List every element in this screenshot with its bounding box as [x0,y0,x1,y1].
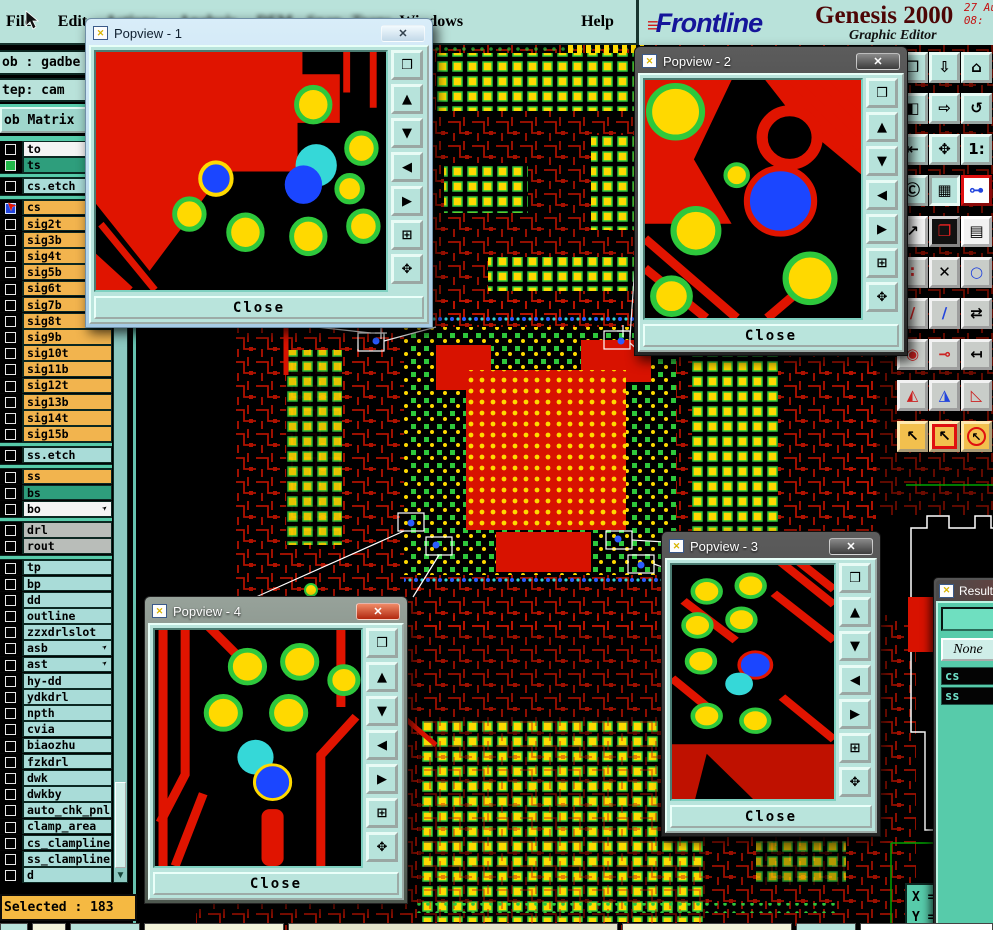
pan-window-right-button[interactable]: ⇨ [929,93,960,124]
zoom-fit-icon[interactable]: ✥ [839,767,871,797]
layer-row-dwkby[interactable]: dwkby [0,786,112,802]
layer-visibility-checkbox[interactable] [0,786,22,802]
layer-row-ss_clampline[interactable]: ss_clampline [0,851,112,867]
product-subtitle: Graphic Editor [849,28,937,44]
popview-4-close-button[interactable]: Close [153,872,399,895]
window-icon: ✕ [939,584,954,598]
layer-visibility-checkbox[interactable] [0,592,22,608]
grid-toggle-button[interactable]: ▦ [929,175,960,206]
layer-name[interactable]: sig11b [22,361,112,377]
layer-row-ast[interactable]: ast➤ [0,657,112,673]
layer-visibility-checkbox[interactable] [0,410,22,426]
layer-name[interactable]: bo➤ [22,501,112,517]
layer-visibility-checkbox[interactable] [0,624,22,640]
result-title: Result [959,584,993,598]
layer-row-sig12t[interactable]: sig12t [0,378,112,394]
zoom-in-icon[interactable]: ⊞ [366,798,398,828]
status-cell [70,923,140,930]
pan-down-icon[interactable]: ▼ [391,118,423,148]
swap-direction-button[interactable]: ⇄ [961,298,992,329]
layer-name[interactable]: dwkby [22,786,112,802]
layer-visibility-checkbox[interactable] [0,802,22,818]
status-cell [622,923,792,930]
layer-row-asb[interactable]: asb➤ [0,640,112,656]
measure-point-icon: ○ [970,265,983,280]
pan-center-button[interactable]: ✥ [929,134,960,165]
ruler-button[interactable]: ▤ [961,216,992,247]
slope-line-blue-button[interactable]: ∕ [929,298,960,329]
layer-name[interactable]: bs [22,485,112,501]
layer-name[interactable]: outline [22,608,112,624]
rotate-view-button[interactable]: ↺ [961,93,992,124]
segment-mid-button[interactable]: ⊸ [929,339,960,370]
layer-visibility-checkbox[interactable] [0,522,22,538]
scrollbar-thumb[interactable] [115,782,126,868]
layer-name[interactable]: ss_clampline [22,851,112,867]
layer-name[interactable]: bp [22,576,112,592]
layer-row-cvia[interactable]: cvia [0,721,112,737]
layer-context-arrow: ➤ [100,643,111,654]
popview-3-frame: ❒▲▼◀▶⊞✥ Close [665,558,877,833]
layer-visibility-checkbox[interactable] [0,297,22,313]
layer-row-biaozhu[interactable]: biaozhu [0,738,112,754]
layer-row-sig13b[interactable]: sig13b [0,394,112,410]
layer-row-sig14t[interactable]: sig14t [0,410,112,426]
result-field[interactable] [941,607,993,631]
layer-row-sig15b[interactable]: sig15b [0,426,112,442]
layer-visibility-checkbox[interactable] [0,608,22,624]
window-icon: ✕ [93,26,108,40]
popview-1-toolbar: ❒▲▼◀▶⊞✥ [388,50,424,292]
net-compare-button[interactable]: ⊶ [961,175,992,206]
pan-right-icon[interactable]: ▶ [391,186,423,216]
layer-visibility-checkbox[interactable] [0,485,22,501]
layer-visibility-checkbox[interactable] [0,394,22,410]
delete-mode-button[interactable]: ✕ [929,257,960,288]
layer-name[interactable]: dd [22,592,112,608]
pan-up-icon[interactable]: ▲ [866,112,898,142]
layer-name[interactable]: dwk [22,770,112,786]
layer-visibility-checkbox[interactable] [0,754,22,770]
layer-visibility-checkbox[interactable] [0,673,22,689]
angle-red-button[interactable]: ◭ [897,380,928,411]
popview-4-window[interactable]: ✕ Popview - 4 ✕ [144,596,408,904]
layer-visibility-checkbox[interactable] [0,560,22,576]
popview-3-close-button[interactable]: Close [670,805,872,828]
cursor-select-icon: ↖ [906,429,919,444]
result-titlebar[interactable]: ✕ Result [936,580,993,601]
popview-3-titlebar[interactable]: ✕ Popview - 3 ✕ [665,534,877,558]
layer-name[interactable]: fzkdrl [22,754,112,770]
layer-visibility-checkbox[interactable] [0,501,22,517]
zoom-1-1-icon: 1: [968,142,984,157]
layer-name[interactable]: rout [22,538,112,554]
layer-visibility-checkbox[interactable] [0,640,22,656]
layer-visibility-checkbox[interactable] [0,770,22,786]
layer-name[interactable]: sig9b [22,329,112,345]
result-none-button[interactable]: None [941,638,993,661]
menu-item-edit[interactable]: Edit [58,13,87,31]
popview-3-canvas[interactable] [670,563,836,801]
layer-name[interactable]: clamp_area [22,819,112,835]
layer-row-auto_chk_pnl[interactable]: auto_chk_pnl [0,802,112,818]
layer-visibility-checkbox[interactable] [0,738,22,754]
status-cell [144,923,284,930]
window-icon: ✕ [642,54,657,68]
pan-down-icon[interactable]: ▼ [366,696,398,726]
pan-down-icon[interactable]: ▼ [866,146,898,176]
zoom-in-icon[interactable]: ⊞ [866,248,898,278]
layer-visibility-checkbox[interactable] [0,867,22,883]
new-popview-icon[interactable]: ❒ [366,628,398,658]
layer-visibility-checkbox[interactable] [0,178,22,194]
layer-visibility-checkbox[interactable] [0,157,22,173]
slope-line-blue-icon: ∕ [942,306,947,321]
layer-row-hy-dd[interactable]: hy-dd [0,673,112,689]
popview-2-artwork [645,80,861,318]
popview-3-toolbar: ❒▲▼◀▶⊞✥ [836,563,872,801]
layer-visibility-checkbox[interactable] [0,216,22,232]
menu-item-help[interactable]: Help [581,13,614,31]
layer-row-bo[interactable]: bo➤ [0,501,112,517]
pan-center-icon: ✥ [938,142,951,157]
zoom-fit-icon[interactable]: ✥ [366,832,398,862]
popview-1-title: Popview - 1 [114,26,375,41]
datetime-display: 27 Au08: [964,1,993,27]
genesis-2000-screen: FileEditActionsAnalysisDFMSnapTransWindo… [0,0,993,930]
angle-blue-icon: ◮ [939,388,951,403]
grid-toggle-icon: ▦ [937,183,951,198]
layer-row-d[interactable]: d [0,867,112,883]
layer-row-ydkdrl[interactable]: ydkdrl [0,689,112,705]
net-compare-icon: ⊶ [969,183,984,198]
cursor-select-circle-button[interactable]: ↖ [961,421,992,452]
popview-1-canvas[interactable] [94,50,388,292]
layer-visibility-checkbox[interactable] [0,851,22,867]
cursor-select-box-icon: ↖ [938,429,951,444]
pan-edge-icon: ⇤ [906,142,919,157]
pan-up-icon[interactable]: ▲ [391,84,423,114]
layer-row-fzkdrl[interactable]: fzkdrl [0,754,112,770]
layer-context-arrow: ➤ [100,503,111,514]
popview-4-title: Popview - 4 [173,604,350,619]
popview-3-window[interactable]: ✕ Popview - 3 ✕ [661,531,881,837]
new-popview-icon[interactable]: ❒ [391,50,423,80]
layer-row-drl[interactable]: drl [0,522,112,538]
layer-name[interactable]: biaozhu [22,738,112,754]
scrollbar-down-arrow[interactable]: ▼ [114,869,127,882]
pan-left-icon[interactable]: ◀ [391,152,423,182]
layer-visibility-checkbox[interactable] [0,657,22,673]
slope-line-red-icon: ∕ [910,306,915,321]
layer-name[interactable]: hy-dd [22,673,112,689]
pan-window-down-icon: ⇩ [938,60,951,75]
pan-right-icon[interactable]: ▶ [866,214,898,244]
layer-name[interactable]: sig15b [22,426,112,442]
popview-2-frame: ❒▲▼◀▶⊞✥ Close [638,73,904,352]
popview-2-titlebar[interactable]: ✕ Popview - 2 ✕ [638,49,904,73]
result-item-ss[interactable]: ss [941,687,993,705]
layer-name[interactable]: ss.etch [22,447,112,463]
angle-half-button[interactable]: ◺ [961,380,992,411]
layer-name[interactable]: drl [22,522,112,538]
cursor-select-circle-icon: ↖ [967,427,986,446]
popview-3-close-x[interactable]: ✕ [829,538,873,555]
popview-1-close-button[interactable]: Close [94,296,424,319]
popview-2-toolbar: ❒▲▼◀▶⊞✥ [863,78,899,320]
layer-row-outline[interactable]: outline [0,608,112,624]
layer-visibility-checkbox[interactable] [0,689,22,705]
layer-visibility-checkbox[interactable] [0,721,22,737]
popview-4-canvas[interactable] [153,628,363,868]
popview-2-title: Popview - 2 [663,54,850,69]
popview-4-toolbar: ❒▲▼◀▶⊞✥ [363,628,399,868]
pan-left-icon[interactable]: ◀ [366,730,398,760]
layer-row-clamp_area[interactable]: clamp_area [0,819,112,835]
layer-name[interactable]: asb➤ [22,640,112,656]
pan-window-down-button[interactable]: ⇩ [929,52,960,83]
layer-context-arrow: ➤ [100,659,111,670]
popview-1-artwork [96,52,386,290]
ruler-icon: ▤ [969,224,983,239]
pan-down-icon[interactable]: ▼ [839,631,871,661]
layer-name[interactable]: cs_clampline [22,835,112,851]
layer-visibility-checkbox[interactable] [0,819,22,835]
popview-1-frame: ❒▲▼◀▶⊞✥ Close [89,45,429,324]
angle-blue-button[interactable]: ◮ [929,380,960,411]
layer-visibility-checkbox[interactable] [0,705,22,721]
layer-row-cs_clampline[interactable]: cs_clampline [0,835,112,851]
home-view-icon: ⌂ [971,60,982,75]
zoom-1-1-button[interactable]: 1: [961,134,992,165]
layer-visibility-checkbox[interactable] [0,141,22,157]
layer-name[interactable]: npth [22,705,112,721]
status-cell [0,923,28,930]
layer-visibility-checkbox[interactable] [0,576,22,592]
zoom-window-icon: ❐ [938,224,951,239]
popview-2-close-button[interactable]: Close [643,324,899,347]
layer-row-ss.etch[interactable]: ss.etch [0,447,112,463]
segment-mid-icon: ⊸ [938,347,951,362]
layer-name[interactable]: auto_chk_pnl [22,802,112,818]
layer-name[interactable]: zzxdrlslot [22,624,112,640]
pan-up-icon[interactable]: ▲ [839,597,871,627]
result-item-cs[interactable]: cs [941,667,993,685]
result-body: None cs ss [936,601,993,927]
layer-row-tp[interactable]: tp [0,560,112,576]
status-cell [860,923,993,930]
popview-1-window[interactable]: ✕ Popview - 1 ✕ [85,18,433,328]
popview-3-title: Popview - 3 [690,539,823,554]
layer-name[interactable]: cvia [22,721,112,737]
status-cell [288,923,618,930]
layer-row-npth[interactable]: npth [0,705,112,721]
layer-name[interactable]: sig10t [22,345,112,361]
layer-row-sig11b[interactable]: sig11b [0,361,112,377]
layer-visibility-checkbox[interactable] [0,447,22,463]
pan-right-icon[interactable]: ▶ [366,764,398,794]
popview-1-titlebar[interactable]: ✕ Popview - 1 ✕ [89,21,429,45]
cursor-select-box-button[interactable]: ↖ [929,421,960,452]
window-icon: ✕ [669,539,684,553]
rotate-view-icon: ↺ [970,101,983,116]
zoom-in-icon[interactable]: ⊞ [391,220,423,250]
layer-name[interactable]: ast➤ [22,657,112,673]
brand-panel: ≡Frontline Genesis 2000 Graphic Editor 2… [636,0,993,47]
zoom-window-button[interactable]: ❐ [929,216,960,247]
layer-row-sig10t[interactable]: sig10t [0,345,112,361]
popview-1-close-x[interactable]: ✕ [381,25,425,42]
window-icon: ✕ [152,604,167,618]
zoom-in-icon[interactable]: ⊞ [839,733,871,763]
pad-stack-icon: ∶ [910,265,914,280]
layer-visibility-checkbox[interactable] [0,361,22,377]
result-window: ✕ Result None cs ss [933,577,993,930]
pan-right-icon[interactable]: ▶ [839,699,871,729]
popview-2-canvas[interactable] [643,78,863,320]
layer-visibility-checkbox[interactable] [0,378,22,394]
layer-visibility-checkbox[interactable] [0,200,22,216]
pan-up-icon[interactable]: ▲ [366,662,398,692]
layer-name[interactable]: ydkdrl [22,689,112,705]
layer-visibility-checkbox[interactable] [0,264,22,280]
layer-visibility-checkbox[interactable] [0,426,22,442]
pan-window-right-icon: ⇨ [938,101,951,116]
select-move-icon: ↗ [906,224,919,239]
status-cell [32,923,66,930]
layer-row-bs[interactable]: bs [0,485,112,501]
layer-visibility-checkbox[interactable] [0,248,22,264]
layer-row-sig9b[interactable]: sig9b [0,329,112,345]
menu-item-file[interactable]: File [6,13,32,31]
layer-name[interactable]: sig12t [22,378,112,394]
layer-name[interactable]: d [22,867,112,883]
zoom-fit-icon[interactable]: ✥ [391,254,423,284]
popview-2-window[interactable]: ✕ Popview - 2 ✕ [634,46,908,356]
cursor-select-button[interactable]: ↖ [897,421,928,452]
layer-row-ss[interactable]: ss [0,469,112,485]
layer-row-dd[interactable]: dd [0,592,112,608]
layer-name[interactable]: sig14t [22,410,112,426]
layer-row-bp[interactable]: bp [0,576,112,592]
popview-4-close-x[interactable]: ✕ [356,603,400,620]
zoom-fit-icon[interactable]: ✥ [866,282,898,312]
dimension-left-button[interactable]: ↤ [961,339,992,370]
layer-row-dwk[interactable]: dwk [0,770,112,786]
layer-name[interactable]: sig13b [22,394,112,410]
angle-half-icon: ◺ [971,388,983,403]
pan-left-icon[interactable]: ◀ [866,180,898,210]
layer-name[interactable]: ss [22,469,112,485]
layer-visibility-checkbox[interactable] [0,281,22,297]
frontline-logo: ≡Frontline [647,8,762,39]
main-toolbar: ❒⇩⌂◧⇨↺⇤✥1:Ⓒ▦⊶↗❐▤∶✕○∕∕⇄◉⊸↤◭◮◺↖↖↖ [897,52,992,452]
new-popview-icon[interactable]: ❒ [866,78,898,108]
swap-direction-icon: ⇄ [970,306,983,321]
layer-visibility-checkbox[interactable] [0,345,22,361]
product-title: Genesis 2000 [815,2,953,30]
angle-red-icon: ◭ [907,388,919,403]
popview-3-artwork [672,565,834,799]
delete-mode-icon: ✕ [938,265,951,280]
popview-2-close-x[interactable]: ✕ [856,53,900,70]
layer-row-rout[interactable]: rout [0,538,112,554]
pan-left-icon[interactable]: ◀ [839,665,871,695]
layer-visibility-checkbox[interactable] [0,313,22,329]
layer-visibility-checkbox[interactable] [0,469,22,485]
layer-visibility-checkbox[interactable] [0,835,22,851]
status-strip [0,923,993,930]
status-cell [796,923,856,930]
layer-row-zzxdrlslot[interactable]: zzxdrlslot [0,624,112,640]
layer-visibility-checkbox[interactable] [0,329,22,345]
layer-name[interactable]: tp [22,560,112,576]
popview-4-frame: ❒▲▼◀▶⊞✥ Close [148,623,404,900]
measure-point-button[interactable]: ○ [961,257,992,288]
selected-count: Selected : 183 [0,894,137,921]
layer-visibility-checkbox[interactable] [0,232,22,248]
dimension-left-icon: ↤ [970,347,983,362]
popview-4-artwork [155,630,361,866]
logo-speed-lines-icon: ≡ [647,15,656,37]
new-popview-icon[interactable]: ❒ [839,563,871,593]
home-view-button[interactable]: ⌂ [961,52,992,83]
popview-4-titlebar[interactable]: ✕ Popview - 4 ✕ [148,599,404,623]
layer-visibility-checkbox[interactable] [0,538,22,554]
